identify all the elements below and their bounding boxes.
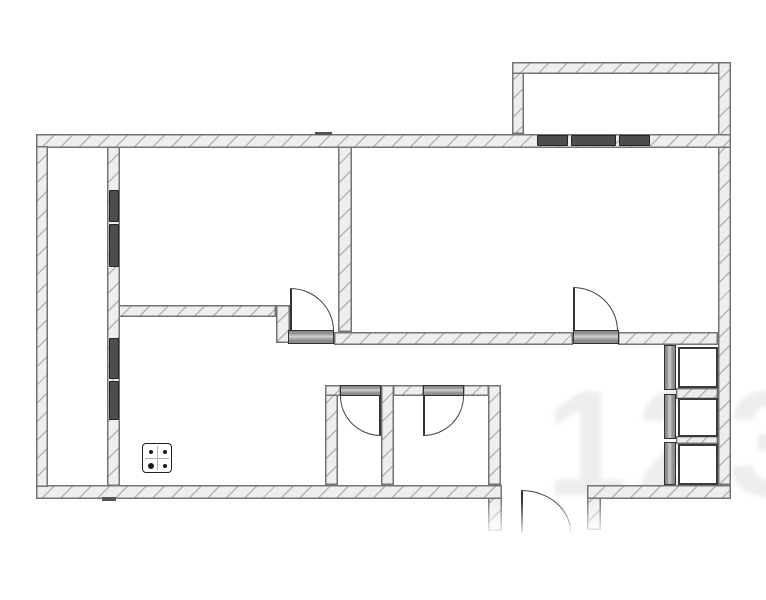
- wall-bath-block-right: [488, 385, 501, 485]
- closet-door-bar-2: [664, 394, 676, 439]
- floor-plan-canvas: 123: [0, 0, 766, 600]
- wall-bath-divider: [381, 385, 394, 485]
- closet-shelf-2: [676, 436, 718, 444]
- living-room-door-bar: [573, 330, 619, 344]
- closet-box-2: [678, 398, 718, 437]
- loggia-window-lower-seg-1: [109, 338, 119, 379]
- wc-door-swing: [340, 396, 381, 436]
- bathroom-door-bar: [423, 385, 464, 396]
- loggia-window-lower-seg-2: [109, 381, 119, 420]
- bottom-fade-overlay: [462, 500, 632, 548]
- tick-bottom-wall: [102, 497, 116, 501]
- wc-door-bar: [340, 385, 381, 396]
- stove-divider-horizontal: [145, 458, 169, 459]
- living-room-door-swing: [573, 287, 618, 331]
- stove-symbol: [142, 443, 172, 473]
- wall-hall-top-right: [618, 332, 718, 345]
- loggia-window-upper-seg-1: [109, 190, 119, 222]
- balcony-window-seg-1: [537, 135, 568, 146]
- wall-left-outer: [36, 146, 48, 487]
- bedroom-door-bar: [288, 330, 334, 344]
- balcony-window-seg-3: [619, 135, 650, 146]
- wall-bedroom-living: [338, 146, 352, 332]
- closet-door-bar-1: [664, 345, 676, 390]
- wall-bath-top-b: [393, 385, 424, 396]
- bedroom-door-swing: [290, 288, 334, 331]
- wall-bath-top-c: [463, 385, 489, 396]
- bathroom-door-swing: [423, 396, 464, 436]
- wall-bedroom-kitchen: [113, 305, 276, 317]
- balcony-window-seg-2: [571, 135, 616, 146]
- wall-balcony-top: [512, 62, 731, 74]
- stove-burner-1: [149, 450, 153, 454]
- wall-hall-top-left: [334, 332, 573, 345]
- closet-box-3: [678, 444, 718, 485]
- stove-burner-3: [148, 463, 155, 470]
- wall-bottom-right: [587, 485, 731, 499]
- stove-burner-4: [163, 464, 167, 468]
- tick-top-wall: [315, 132, 332, 135]
- closet-box-1: [678, 347, 718, 388]
- wall-bath-block-left: [325, 385, 338, 485]
- closet-door-bar-3: [664, 442, 676, 485]
- stove-burner-2: [163, 450, 167, 454]
- floor-plan-drawing: 123: [0, 0, 766, 600]
- wall-right-outer: [718, 62, 731, 485]
- loggia-window-upper-seg-2: [109, 224, 119, 267]
- wall-bath-top-a: [325, 385, 341, 396]
